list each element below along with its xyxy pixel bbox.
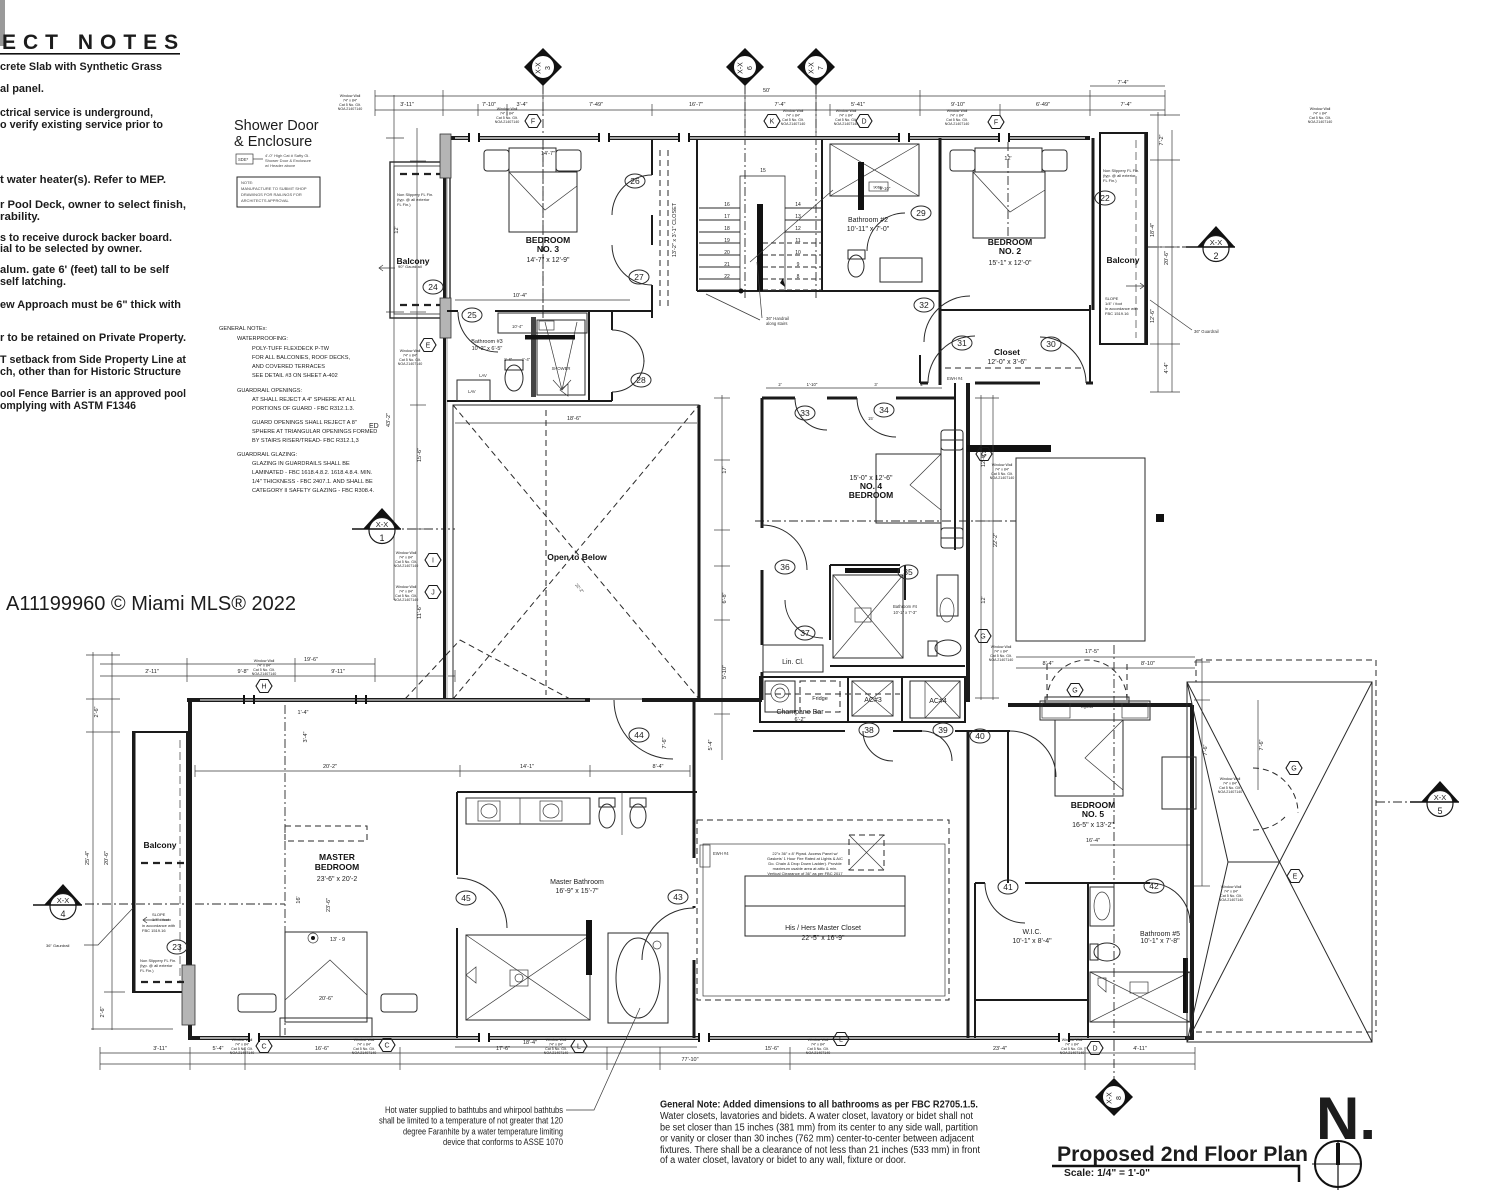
- svg-text:AT SHALL REJECT A 4" SPHERE AT: AT SHALL REJECT A 4" SPHERE AT ALL: [252, 397, 356, 403]
- svg-text:16'-7": 16'-7": [689, 102, 703, 108]
- svg-text:GUARD OPENINGS SHALL REJECT A: GUARD OPENINGS SHALL REJECT A 8": [252, 420, 357, 426]
- svg-text:29: 29: [916, 208, 926, 218]
- svg-text:19'-6": 19'-6": [304, 657, 318, 663]
- svg-text:FL Fin.): FL Fin.): [140, 968, 154, 973]
- svg-text:31: 31: [957, 338, 967, 348]
- svg-text:28: 28: [636, 375, 646, 385]
- svg-text:G: G: [980, 634, 985, 641]
- svg-text:5'-4": 5'-4": [708, 739, 714, 750]
- svg-text:43: 43: [673, 892, 683, 902]
- svg-text:10'-11" x 7'-0": 10'-11" x 7'-0": [847, 226, 890, 233]
- svg-text:ctrical service is underground: ctrical service is underground,: [0, 107, 153, 119]
- svg-text:10: 10: [795, 250, 801, 256]
- svg-text:16': 16': [296, 896, 302, 903]
- svg-text:ial to be selected by owner.: ial to be selected by owner.: [0, 243, 142, 255]
- svg-text:12: 12: [795, 226, 801, 232]
- svg-text:H: H: [261, 684, 266, 691]
- svg-text:Lin. Cl.: Lin. Cl.: [782, 659, 804, 666]
- svg-text:E: E: [1293, 874, 1298, 881]
- svg-text:MANUFACTURE TO SUBMIT SHOP: MANUFACTURE TO SUBMIT SHOP: [241, 186, 307, 191]
- svg-text:device that conforms to ASSE 1: device that conforms to ASSE 1070: [443, 1137, 563, 1148]
- svg-text:3: 3: [545, 66, 552, 70]
- svg-text:18'-4": 18'-4": [523, 1040, 537, 1046]
- svg-text:Bathroom #2: Bathroom #2: [848, 217, 888, 224]
- svg-text:shall be limited to a temperat: shall be limited to a temperature of not…: [379, 1116, 563, 1127]
- svg-text:1: 1: [379, 533, 384, 543]
- svg-text:T setback from Side Property L: T setback from Side Property Line at: [0, 354, 186, 366]
- svg-text:13: 13: [795, 214, 801, 220]
- svg-text:Fridge: Fridge: [812, 696, 828, 702]
- svg-text:23: 23: [172, 942, 182, 952]
- svg-text:1/4" / foot: 1/4" / foot: [152, 917, 170, 922]
- svg-text:ew Approach must be 6" thick w: ew Approach must be 6" thick with: [0, 299, 181, 311]
- svg-text:10'-1" x 7'-3": 10'-1" x 7'-3": [893, 610, 917, 615]
- svg-text:His / Hers Master Closet: His / Hers Master Closet: [785, 925, 861, 932]
- svg-text:EWH #4: EWH #4: [713, 851, 729, 856]
- svg-text:16'-4": 16'-4": [1086, 838, 1100, 844]
- svg-text:Hot water supplied to bathtubs: Hot water supplied to bathtubs and whirp…: [385, 1105, 563, 1116]
- svg-text:X-X: X-X: [809, 62, 816, 74]
- svg-text:Scale: 1/4" = 1'-0": Scale: 1/4" = 1'-0": [1064, 1168, 1150, 1179]
- svg-text:17': 17': [722, 466, 728, 473]
- svg-text:of a water closet, lavatory or: of a water closet, lavatory or bidet to …: [660, 1155, 906, 1166]
- svg-text:23'-6" x 20'-2: 23'-6" x 20'-2: [317, 876, 358, 883]
- svg-text:6'-2": 6'-2": [795, 717, 806, 723]
- svg-text:11: 11: [795, 238, 800, 244]
- svg-text:10'-1" x 8'-4": 10'-1" x 8'-4": [1012, 938, 1052, 945]
- svg-text:15'-6": 15'-6": [765, 1046, 779, 1052]
- svg-text:NO. 5: NO. 5: [1082, 809, 1104, 819]
- svg-text:SDE*: SDE*: [238, 157, 249, 162]
- svg-text:Open to Below: Open to Below: [547, 552, 607, 562]
- svg-text:40: 40: [975, 731, 985, 741]
- svg-text:F: F: [994, 120, 998, 127]
- svg-text:15'-1" x 12'-0": 15'-1" x 12'-0": [988, 260, 1032, 267]
- svg-text:alum. gate 6' (feet) tall to b: alum. gate 6' (feet) tall to be self: [0, 264, 169, 276]
- svg-text:Champane Bar: Champane Bar: [776, 709, 824, 716]
- svg-text:1'-4": 1'-4": [504, 357, 513, 362]
- svg-text:t water heater(s). Refer to ME: t water heater(s). Refer to MEP.: [0, 174, 166, 186]
- svg-text:self latching.: self latching.: [0, 276, 66, 288]
- svg-text:rability.: rability.: [0, 211, 40, 223]
- svg-text:13'-2" x 3'-1" CLOSET: 13'-2" x 3'-1" CLOSET: [672, 202, 678, 257]
- svg-text:15'-6": 15'-6": [417, 448, 423, 462]
- svg-text:X-X: X-X: [1210, 238, 1223, 247]
- svg-text:24: 24: [428, 282, 438, 292]
- svg-text:3'-11": 3'-11": [153, 1046, 167, 1052]
- svg-text:BEDROOM: BEDROOM: [315, 862, 359, 872]
- svg-text:25'-4": 25'-4": [85, 851, 91, 865]
- svg-text:2'-11": 2'-11": [145, 669, 159, 675]
- svg-text:4'-4": 4'-4": [1164, 362, 1170, 373]
- svg-text:5'-10": 5'-10": [722, 665, 728, 679]
- svg-text:I: I: [432, 558, 434, 565]
- svg-text:9'-11": 9'-11": [331, 669, 345, 675]
- svg-text:G: G: [1072, 688, 1077, 695]
- svg-text:12'-0" x 3'-6": 12'-0" x 3'-6": [987, 359, 1027, 366]
- svg-text:4: 4: [60, 909, 65, 919]
- svg-text:7'-49": 7'-49": [589, 102, 603, 108]
- svg-text:26: 26: [630, 176, 640, 186]
- svg-text:8'-4": 8'-4": [1043, 661, 1054, 667]
- svg-text:22'-2": 22'-2": [993, 533, 999, 547]
- svg-text:9'-10": 9'-10": [951, 102, 965, 108]
- svg-text:Master Bathroom: Master Bathroom: [550, 879, 604, 886]
- svg-text:12': 12': [1004, 156, 1011, 162]
- svg-text:9'-10": 9'-10": [880, 186, 891, 191]
- svg-text:7'-6": 7'-6": [662, 737, 668, 748]
- svg-text:14'-1": 14'-1": [520, 764, 534, 770]
- svg-text:FL Fin.): FL Fin.): [1103, 178, 1117, 183]
- svg-text:37: 37: [800, 628, 810, 638]
- svg-text:Bathroom #4: Bathroom #4: [893, 604, 918, 609]
- svg-text:NO. 3: NO. 3: [537, 244, 559, 254]
- svg-text:Bathroom #5: Bathroom #5: [1140, 931, 1180, 938]
- svg-text:Bathroom #3: Bathroom #3: [471, 339, 503, 345]
- svg-text:FL Fin.): FL Fin.): [397, 202, 411, 207]
- svg-text:36" Gaurdrail: 36" Gaurdrail: [46, 943, 70, 948]
- svg-text:5: 5: [1437, 806, 1442, 816]
- svg-text:8: 8: [1116, 1096, 1123, 1100]
- svg-text:20: 20: [724, 250, 730, 256]
- svg-text:K: K: [770, 119, 775, 126]
- svg-text:44: 44: [634, 730, 644, 740]
- svg-text:X-X: X-X: [376, 520, 389, 529]
- svg-text:8: 8: [797, 274, 800, 280]
- svg-text:22: 22: [1100, 193, 1110, 203]
- svg-text:2': 2': [778, 382, 781, 387]
- svg-text:2: 2: [1213, 251, 1218, 261]
- svg-text:o verify existing service prio: o verify existing service prior to: [0, 119, 163, 131]
- svg-text:8'-4": 8'-4": [653, 764, 664, 770]
- svg-text:along stairs: along stairs: [766, 321, 787, 326]
- svg-text:20'-6": 20'-6": [319, 996, 333, 1002]
- svg-text:NOTE:: NOTE:: [241, 180, 253, 185]
- svg-text:33: 33: [800, 408, 810, 418]
- svg-text:GENERAL NOTEx:: GENERAL NOTEx:: [219, 326, 267, 332]
- svg-text:14'-7" x 12'-9": 14'-7" x 12'-9": [526, 257, 570, 264]
- svg-text:crete Slab with Synthetic Gras: crete Slab with Synthetic Grass: [0, 61, 162, 73]
- svg-text:omplying with ASTM F1346: omplying with ASTM F1346: [0, 400, 136, 412]
- svg-text:18'-4": 18'-4": [1150, 223, 1156, 237]
- svg-text:or vanity or closer than 30 in: or vanity or closer than 30 inches (762 …: [660, 1134, 974, 1145]
- svg-text:X-X: X-X: [738, 62, 745, 74]
- svg-text:11'-6": 11'-6": [417, 605, 423, 619]
- svg-text:12': 12': [394, 226, 400, 233]
- svg-text:7'-4": 7'-4": [1121, 102, 1132, 108]
- svg-text:LAV: LAV: [479, 373, 487, 378]
- svg-text:2'-6": 2'-6": [94, 706, 100, 717]
- svg-text:16'-6": 16'-6": [315, 1046, 329, 1052]
- svg-text:4'-11": 4'-11": [1133, 1046, 1147, 1052]
- svg-text:MASTER: MASTER: [319, 852, 355, 862]
- svg-text:17'-5": 17'-5": [1085, 649, 1099, 655]
- svg-text:16'-9" x 15'-7": 16'-9" x 15'-7": [555, 888, 599, 895]
- svg-text:Water closets, lavatories and: Water closets, lavatories and bidets. A …: [660, 1111, 973, 1122]
- svg-text:AND COVERED TERRACES: AND COVERED TERRACES: [252, 364, 325, 370]
- svg-text:12'-6": 12'-6": [1150, 309, 1156, 323]
- svg-text:r Pool Deck, owner to select f: r Pool Deck, owner to select finish,: [0, 199, 186, 211]
- svg-text:Vertical Clearance of 36" as p: Vertical Clearance of 36" as per FBC 201…: [767, 871, 843, 876]
- svg-text:50': 50': [763, 88, 770, 94]
- svg-text:17: 17: [724, 214, 730, 220]
- svg-text:LAMINATED - FBC 1618.4.8.2. 16: LAMINATED - FBC 1618.4.8.2. 1618.4.8.4. …: [252, 470, 373, 476]
- svg-text:10'-4": 10'-4": [513, 293, 527, 299]
- svg-text:Balcony: Balcony: [143, 840, 176, 850]
- svg-text:FBC 1519.16: FBC 1519.16: [1105, 311, 1129, 316]
- svg-text:14: 14: [795, 202, 801, 208]
- svg-text:41: 41: [1003, 882, 1013, 892]
- svg-text:10'-1" x 7'-8": 10'-1" x 7'-8": [1140, 938, 1180, 945]
- svg-text:1'-4": 1'-4": [522, 357, 531, 362]
- svg-text:ECT NOTES: ECT NOTES: [2, 31, 185, 54]
- svg-text:EWH #4: EWH #4: [947, 376, 963, 381]
- svg-text:6'-8": 6'-8": [722, 592, 728, 603]
- svg-text:X-X: X-X: [57, 896, 70, 905]
- svg-text:3'-4": 3'-4": [517, 102, 528, 108]
- svg-text:GUARDRAIL OPENINGS:: GUARDRAIL OPENINGS:: [237, 388, 303, 394]
- svg-text:90° Gaurdrail: 90° Gaurdrail: [398, 264, 422, 269]
- svg-text:36: 36: [780, 562, 790, 572]
- svg-text:17'-6": 17'-6": [496, 1046, 510, 1052]
- svg-text:AC#3: AC#3: [864, 697, 882, 704]
- svg-text:POLY-TUFF FLEXDECK P-TW: POLY-TUFF FLEXDECK P-TW: [252, 346, 330, 352]
- svg-text:22'-5" x 16'-9": 22'-5" x 16'-9": [801, 935, 845, 942]
- svg-text:32: 32: [919, 300, 929, 310]
- svg-text:LAV: LAV: [468, 389, 476, 394]
- svg-text:9: 9: [797, 262, 800, 268]
- svg-text:General Note: Added dimension: General Note: Added dimensions to all ba…: [660, 1100, 978, 1111]
- svg-text:13' - 9: 13' - 9: [330, 937, 345, 943]
- svg-text:16-5" x 13'-2": 16-5" x 13'-2": [1072, 822, 1114, 829]
- svg-text:& Enclosure: & Enclosure: [234, 134, 312, 150]
- svg-text:36" Guardrail: 36" Guardrail: [1194, 329, 1219, 334]
- svg-text:18'-6": 18'-6": [567, 416, 581, 422]
- svg-text:ch, other than for Historic St: ch, other than for Historic Structure: [0, 366, 181, 378]
- svg-text:7'-4": 7'-4": [1118, 80, 1129, 86]
- svg-text:SPHERE AT TRIANGULAR OPENINGS: SPHERE AT TRIANGULAR OPENINGS FORMED: [252, 429, 377, 435]
- svg-text:7'-6": 7'-6": [1203, 744, 1209, 755]
- svg-text:1'-10": 1'-10": [807, 382, 818, 387]
- svg-text:45: 45: [461, 893, 471, 903]
- svg-text:DRAWINGS FOR RAILINGS FOR: DRAWINGS FOR RAILINGS FOR: [241, 192, 302, 197]
- svg-text:5'-41": 5'-41": [851, 102, 865, 108]
- svg-text:7'-10": 7'-10": [482, 102, 496, 108]
- svg-text:20'-6": 20'-6": [104, 851, 110, 865]
- svg-text:BY STAIRS RISER/TREAD- FBC R31: BY STAIRS RISER/TREAD- FBC R312.1,3: [252, 438, 359, 444]
- svg-text:G: G: [1291, 766, 1296, 773]
- svg-text:D: D: [861, 119, 866, 126]
- svg-text:3'-4": 3'-4": [303, 731, 309, 742]
- svg-text:1'-4": 1'-4": [298, 710, 309, 716]
- svg-text:34: 34: [879, 405, 889, 415]
- svg-text:5'-4": 5'-4": [213, 1046, 224, 1052]
- svg-text:C: C: [261, 1044, 266, 1051]
- svg-text:GUARDRAIL GLAZING:: GUARDRAIL GLAZING:: [237, 452, 298, 458]
- svg-text:39: 39: [938, 725, 948, 735]
- svg-text:20'-2": 20'-2": [323, 764, 337, 770]
- svg-text:X-X: X-X: [536, 62, 543, 74]
- svg-text:21: 21: [724, 262, 730, 268]
- svg-text:AC#4: AC#4: [929, 698, 947, 705]
- svg-text:SEE DETAIL #3 ON SHEET A-402: SEE DETAIL #3 ON SHEET A-402: [252, 373, 338, 379]
- svg-text:7'-6": 7'-6": [1259, 739, 1265, 750]
- svg-text:al panel.: al panel.: [0, 83, 44, 95]
- svg-text:W.I.C.: W.I.C.: [1022, 929, 1041, 936]
- svg-text:Balcony: Balcony: [1106, 255, 1139, 265]
- svg-text:38: 38: [864, 725, 874, 735]
- svg-text:SHOWER: SHOWER: [552, 366, 571, 371]
- svg-text:23'-4": 23'-4": [993, 1046, 1007, 1052]
- svg-text:D: D: [1092, 1046, 1097, 1053]
- svg-text:7'-4": 7'-4": [775, 102, 786, 108]
- svg-text:20'-6": 20'-6": [1164, 251, 1170, 265]
- svg-text:be set closer than 15 inches (: be set closer than 15 inches (381 mm) fr…: [660, 1122, 978, 1133]
- svg-text:43'-2": 43'-2": [386, 413, 392, 427]
- svg-text:PORTIONS OF GUARD - FBC R312.1: PORTIONS OF GUARD - FBC R312.1.3.: [252, 406, 355, 412]
- svg-text:J: J: [431, 590, 435, 597]
- svg-text:WATERPROOFING:: WATERPROOFING:: [237, 336, 288, 342]
- svg-text:8'-10": 8'-10": [1141, 661, 1155, 667]
- svg-text:15: 15: [760, 168, 766, 174]
- svg-text:X-X: X-X: [1434, 793, 1447, 802]
- svg-text:GLAZING IN GUARDRAILS SHALL BE: GLAZING IN GUARDRAILS SHALL BE: [252, 461, 350, 467]
- svg-text:10'-4": 10'-4": [512, 324, 523, 329]
- svg-text:3'-11": 3'-11": [400, 102, 414, 108]
- svg-text:FBC 1519.16: FBC 1519.16: [142, 928, 166, 933]
- svg-text:22: 22: [724, 274, 730, 280]
- svg-text:3': 3': [874, 382, 877, 387]
- svg-text:CATEGORY II SAFETY GLAZING - F: CATEGORY II SAFETY GLAZING - FBC R308.4.: [252, 488, 375, 494]
- svg-text:7'-2": 7'-2": [1159, 134, 1165, 145]
- svg-text:r to be retained on Private Pr: r to be retained on Private Property.: [0, 332, 186, 344]
- svg-text:19: 19: [724, 238, 730, 244]
- svg-text:27: 27: [634, 272, 644, 282]
- svg-text:25: 25: [467, 310, 477, 320]
- svg-text:BEDROOM: BEDROOM: [849, 490, 893, 500]
- svg-text:NO. 2: NO. 2: [999, 246, 1021, 256]
- svg-text:ED: ED: [369, 423, 379, 430]
- svg-text:15': 15': [868, 416, 874, 421]
- svg-text:Closet: Closet: [994, 347, 1020, 357]
- svg-text:9'-8": 9'-8": [238, 669, 249, 675]
- svg-text:FOR ALL BALCONIES, ROOF DECKS,: FOR ALL BALCONIES, ROOF DECKS,: [252, 355, 350, 361]
- svg-text:77'-10": 77'-10": [681, 1057, 698, 1063]
- svg-text:L: L: [577, 1044, 581, 1051]
- svg-text:6: 6: [747, 66, 754, 70]
- svg-text:C: C: [384, 1043, 389, 1050]
- svg-text:G: G: [981, 452, 986, 459]
- svg-text:18: 18: [724, 226, 730, 232]
- svg-text:w/ Header above: w/ Header above: [265, 163, 296, 168]
- svg-text:degree Faranhite by a water te: degree Faranhite by a water temperature …: [403, 1126, 563, 1137]
- svg-text:A11199960 © Miami MLS® 2022: A11199960 © Miami MLS® 2022: [6, 593, 296, 615]
- svg-text:6'-49": 6'-49": [1036, 102, 1050, 108]
- svg-text:14'-7": 14'-7": [541, 151, 555, 157]
- svg-text:35: 35: [903, 567, 913, 577]
- svg-text:23'-6": 23'-6": [326, 898, 332, 912]
- svg-text:7: 7: [818, 66, 825, 70]
- svg-text:30: 30: [1046, 339, 1056, 349]
- svg-text:ARCHITECTS APPROVAL: ARCHITECTS APPROVAL: [241, 198, 289, 203]
- svg-text:X-X: X-X: [1107, 1092, 1114, 1104]
- svg-text:1/4" THICKNESS - FBC 2407.1. A: 1/4" THICKNESS - FBC 2407.1. AND SHALL B…: [252, 479, 373, 485]
- svg-text:Proposed 2nd Floor Plan: Proposed 2nd Floor Plan: [1057, 1143, 1308, 1166]
- svg-text:10'-2" x 6'-5": 10'-2" x 6'-5": [472, 346, 503, 352]
- svg-text:16: 16: [724, 202, 730, 208]
- svg-text:F: F: [531, 119, 535, 126]
- svg-text:L: L: [839, 1037, 843, 1044]
- svg-text:Shower Door: Shower Door: [234, 118, 319, 134]
- svg-text:2'-6": 2'-6": [100, 1006, 106, 1017]
- svg-text:42: 42: [1149, 881, 1159, 891]
- svg-text:ool Fence Barrier is an approv: ool Fence Barrier is an approved pool: [0, 388, 186, 400]
- svg-text:E: E: [426, 343, 431, 350]
- svg-text:12': 12': [981, 596, 987, 603]
